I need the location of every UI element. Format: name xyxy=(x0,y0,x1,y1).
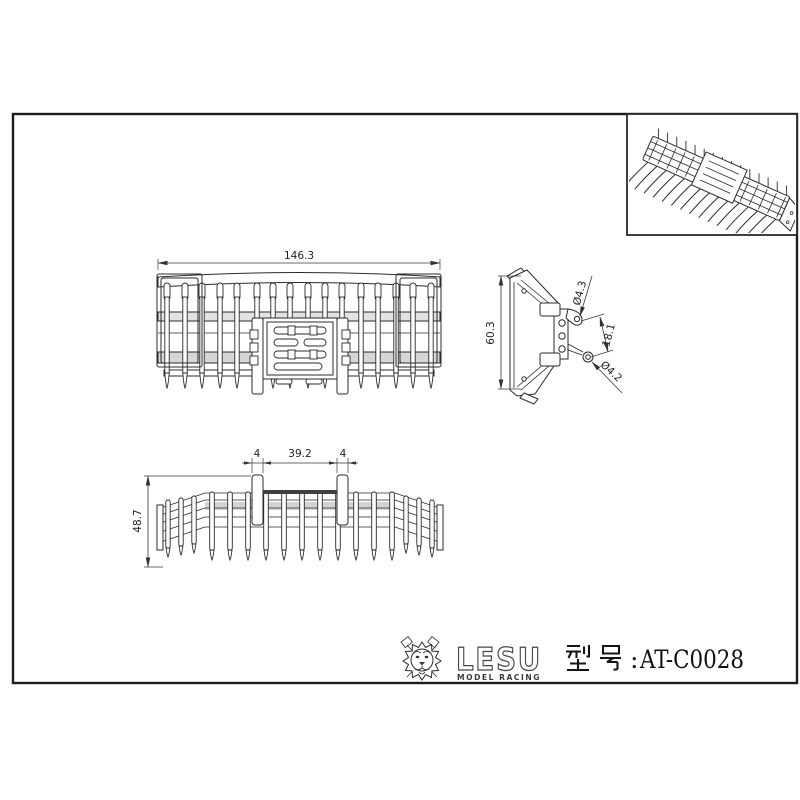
lion-logo xyxy=(401,637,441,680)
model-prefix-glyphs xyxy=(566,645,621,670)
bottom-depth-dimension: 48.7 xyxy=(132,509,144,532)
bottom-post-left-width-dimension: 4 xyxy=(254,448,261,460)
technical-drawing-canvas: 146.3 60.3 Ø4.3 18.1 xyxy=(0,0,800,800)
model-number: : AT-C0028 xyxy=(566,645,744,675)
bottom-view: 4 39.2 4 48.7 xyxy=(132,448,443,567)
front-width-dimension: 146.3 xyxy=(284,250,314,262)
drawing-sheet: 146.3 60.3 Ø4.3 18.1 xyxy=(0,0,800,800)
bottom-mount-post-right xyxy=(337,475,348,525)
side-height-dimension: 60.3 xyxy=(485,321,497,344)
model-separator: : xyxy=(630,645,639,675)
side-hole-spacing-dimension: 18.1 xyxy=(600,322,618,348)
brand-subtitle: MODEL RACING xyxy=(457,673,541,682)
bottom-post-right-width-dimension: 4 xyxy=(340,448,347,460)
front-center-plate xyxy=(250,318,350,384)
side-view: 60.3 Ø4.3 18.1 Ø4.2 xyxy=(485,268,624,404)
title-block: LESU MODEL RACING : AT-C0028 xyxy=(401,637,744,682)
model-code: AT-C0028 xyxy=(639,645,744,675)
front-view: 146.3 xyxy=(157,250,441,394)
bottom-mount-post-left xyxy=(252,475,263,525)
bottom-post-spacing-dimension: 39.2 xyxy=(288,448,311,460)
